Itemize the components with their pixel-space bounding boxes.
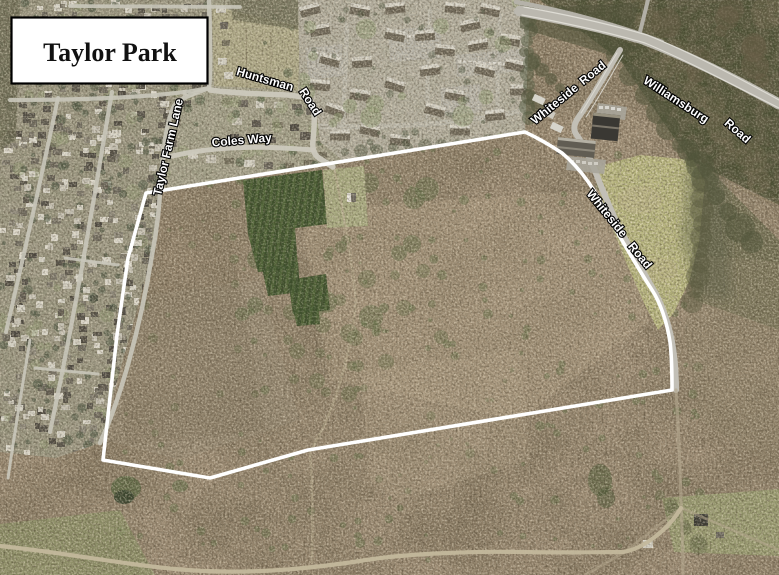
svg-text:Taylor Park: Taylor Park [43, 38, 177, 67]
